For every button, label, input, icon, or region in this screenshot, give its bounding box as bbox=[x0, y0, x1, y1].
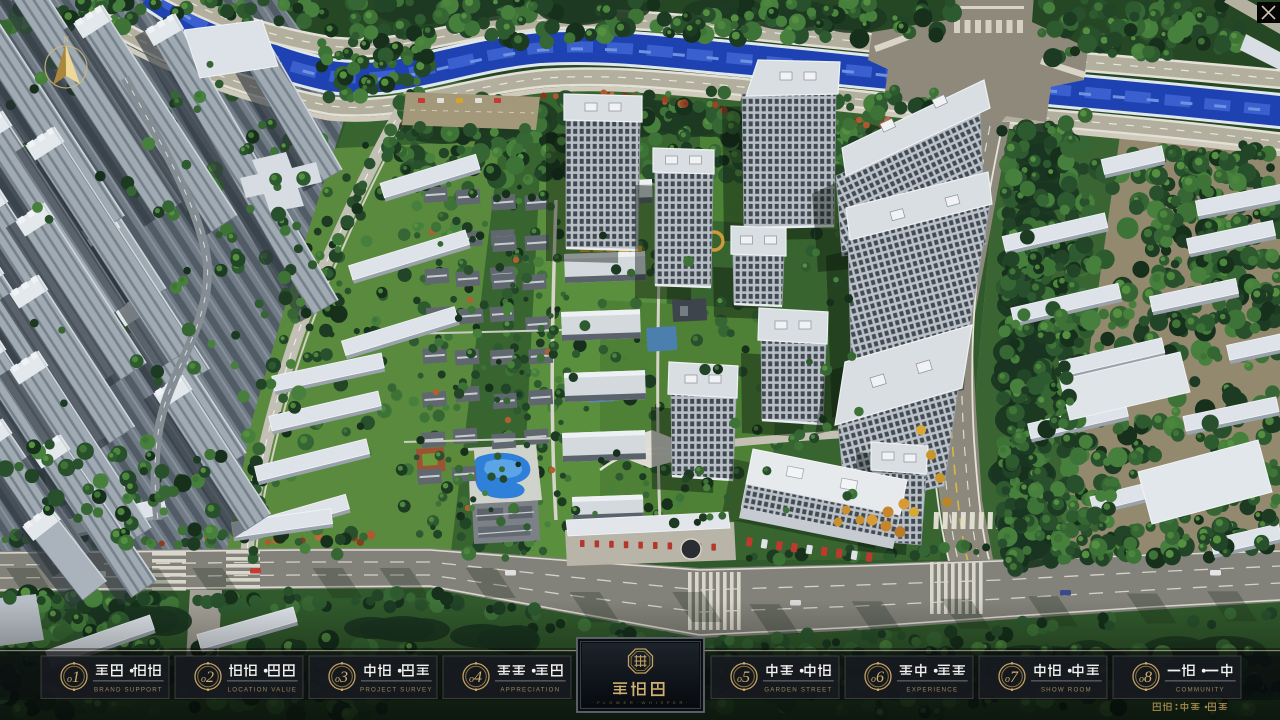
svg-text:PROJECT SURVEY: PROJECT SURVEY bbox=[360, 687, 433, 694]
svg-text:GARDEN STREET: GARDEN STREET bbox=[764, 687, 832, 694]
svg-text:BRAND SUPPORT: BRAND SUPPORT bbox=[94, 687, 163, 694]
svg-text:LOCATION VALUE: LOCATION VALUE bbox=[228, 687, 298, 694]
svg-text:COMMUNITY: COMMUNITY bbox=[1176, 687, 1225, 694]
svg-text:· F L O W E R · W H I S P E R: · F L O W E R · W H I S P E R · bbox=[592, 700, 689, 705]
svg-text:N: N bbox=[63, 35, 69, 44]
svg-text:APPRECIATION: APPRECIATION bbox=[500, 687, 560, 694]
svg-text:SHOW ROOM: SHOW ROOM bbox=[1041, 687, 1092, 694]
svg-text:EXPERIENCE: EXPERIENCE bbox=[906, 687, 958, 694]
